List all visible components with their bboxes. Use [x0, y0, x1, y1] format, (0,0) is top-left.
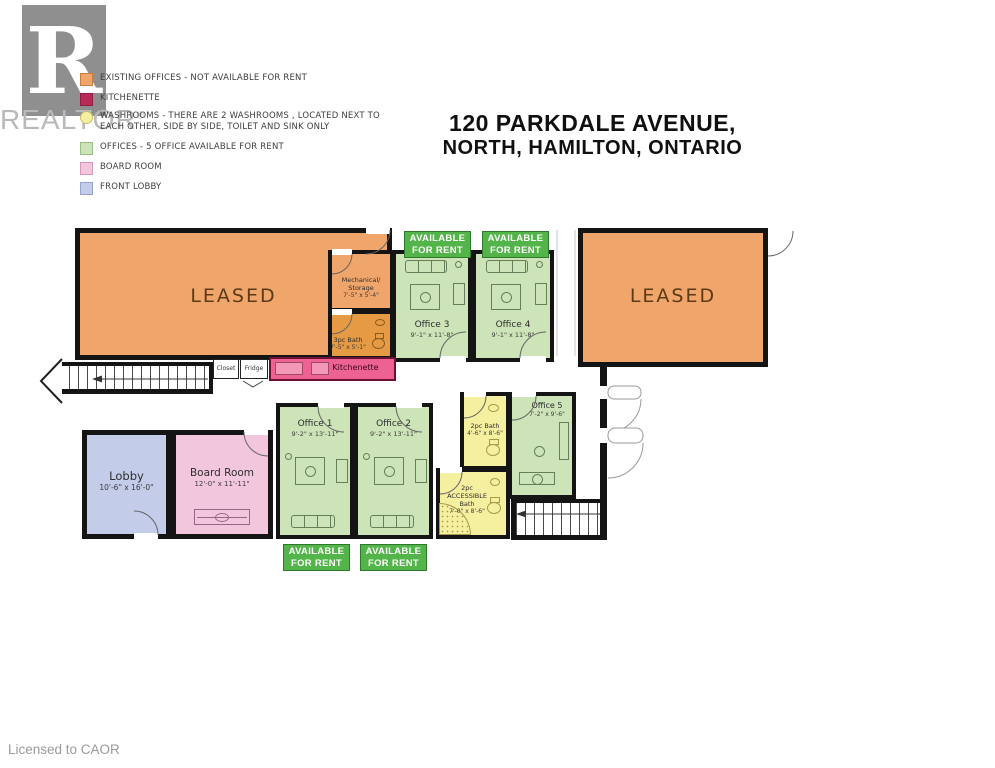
legend-swatch-board-room	[80, 162, 93, 175]
room-mechanical-storage: Mechanical/ Storage 7'-5" x 5'-4"	[328, 250, 394, 312]
available-for-rent-badge: AVAILABLEFOR RENT	[360, 544, 427, 571]
room-label: Office 3	[396, 320, 468, 331]
door-opening	[440, 356, 466, 363]
door-opening	[332, 249, 352, 255]
room-office-1: Office 1 9'-2" x 13'-11"	[276, 403, 354, 539]
title-line-1: 120 PARKDALE AVENUE,	[420, 110, 765, 137]
shelf-icon	[559, 422, 569, 460]
legend-swatch-existing-offices	[80, 73, 93, 86]
legend-swatch-washrooms	[80, 111, 93, 124]
room-dims: 10'-6" x 16'-0"	[87, 483, 166, 492]
door-arc	[608, 443, 643, 478]
available-for-rent-badge: AVAILABLEFOR RENT	[283, 544, 350, 571]
sink-icon	[488, 404, 499, 412]
desk-icon	[295, 457, 325, 485]
legend-swatch-offices	[80, 142, 93, 155]
legend-item-offices: OFFICES - 5 OFFICE AVAILABLE FOR RENT	[80, 142, 392, 155]
room-label: Mechanical/ Storage	[332, 276, 390, 292]
door-opening	[600, 428, 607, 443]
room-bath-3pc: 3pc Bath 7'-5" x 5'-1"	[328, 310, 394, 360]
room-label: Office 4	[476, 320, 550, 331]
exterior-door-icon	[608, 428, 643, 443]
stair-exit-chevron-icon	[41, 359, 62, 403]
room-leased-right: LEASED	[578, 228, 768, 367]
legend-item-front-lobby: FRONT LOBBY	[80, 182, 392, 195]
room-dims: 7'-0" x 8'-6"	[441, 508, 493, 516]
available-for-rent-badge: AVAILABLEFOR RENT	[404, 231, 471, 258]
staircase-left	[60, 362, 213, 394]
door-opening	[440, 467, 462, 473]
license-text: Licensed to CAOR	[8, 742, 120, 757]
room-dims: 9'-1" x 11'-8"	[396, 331, 468, 339]
sofa-icon	[486, 260, 528, 273]
door-opening	[396, 402, 422, 408]
room-dims: 12'-0" x 11'-11"	[176, 480, 268, 489]
room-label: 3pc Bath	[326, 336, 370, 344]
room-label: 2pc Bath	[464, 422, 506, 430]
available-for-rent-badge: AVAILABLEFOR RENT	[482, 231, 549, 258]
chair-icon	[336, 459, 348, 483]
room-bath-accessible: 2pc ACCESSIBLE Bath 7'-0" x 8'-6"	[436, 468, 510, 539]
desk-icon	[374, 457, 404, 485]
room-kitchenette: Kitchenette	[269, 357, 396, 381]
sofa-icon	[291, 515, 335, 528]
door-opening	[332, 309, 352, 315]
room-dims: 9'-1" x 11'-8"	[476, 331, 550, 339]
room-label: Office 2	[358, 419, 429, 430]
plant-icon	[363, 453, 370, 460]
room-label: LEASED	[583, 285, 763, 307]
title-line-2: NORTH, HAMILTON, ONTARIO	[420, 137, 765, 160]
fridge: Fridge	[240, 359, 268, 379]
door-opening	[600, 386, 607, 399]
toilet-icon	[372, 338, 385, 349]
door-opening	[366, 228, 390, 234]
closet: Closet	[213, 359, 239, 379]
room-dims: 4'-6" x 8'-6"	[464, 430, 506, 438]
room-dims: 7'-5" x 5'-4"	[332, 292, 390, 300]
room-dims: 7'-2" x 9'-6"	[522, 411, 572, 419]
room-label: 2pc ACCESSIBLE Bath	[441, 484, 493, 508]
room-office-3: Office 3 9'-1" x 11'-8"	[392, 250, 472, 362]
stove-icon	[275, 362, 303, 375]
corridor-lines	[557, 230, 575, 356]
room-board-room: Board Room 12'-0" x 11'-11"	[171, 430, 273, 539]
plant-icon	[285, 453, 292, 460]
sofa-icon	[370, 515, 414, 528]
room-office-5: Office 5 7'-2" x 9'-6"	[508, 392, 576, 499]
desk-icon	[491, 284, 521, 310]
page-title: 120 PARKDALE AVENUE, NORTH, HAMILTON, ON…	[420, 110, 765, 160]
door-arc	[768, 231, 793, 256]
room-label: Office 5	[522, 401, 572, 411]
chair-icon	[415, 459, 427, 483]
room-lobby: Lobby 10'-6" x 16'-0"	[82, 430, 171, 539]
chair-icon	[535, 283, 547, 305]
chair-icon	[453, 283, 465, 305]
room-label: Lobby	[87, 469, 166, 483]
exterior-door-icon	[608, 386, 641, 399]
desk-icon	[410, 284, 440, 310]
desk-icon	[519, 472, 555, 485]
legend-swatch-front-lobby	[80, 182, 93, 195]
staircase-right	[511, 499, 602, 540]
door-opening	[464, 391, 486, 397]
room-bath-2pc: 2pc Bath 4'-6" x 8'-6"	[460, 392, 510, 470]
door-opening	[134, 533, 158, 540]
fridge-door-chevron-icon	[243, 381, 263, 387]
door-opening	[244, 429, 268, 435]
toilet-icon	[486, 444, 500, 456]
room-label: Kitchenette	[317, 363, 394, 373]
room-dims: 9'-2" x 13'-11"	[358, 430, 429, 438]
plant-icon	[536, 261, 543, 268]
door-arc	[608, 399, 641, 432]
floor-plan-page: R REALTOR® EXISTING OFFICES - NOT AVAILA…	[0, 0, 995, 768]
board-table-icon	[194, 509, 250, 525]
legend-item-board-room: BOARD ROOM	[80, 162, 392, 175]
sink-icon	[375, 319, 385, 326]
legend-item-existing-offices: EXISTING OFFICES - NOT AVAILABLE FOR REN…	[80, 73, 392, 86]
room-dims: 7'-5" x 5'-1"	[326, 344, 370, 352]
room-dims: 9'-2" x 13'-11"	[280, 430, 350, 438]
legend-item-kitchenette: KITCHENETTE	[80, 93, 392, 106]
room-office-4: Office 4 9'-1" x 11'-8"	[472, 250, 554, 362]
sofa-icon	[405, 260, 447, 273]
plant-icon	[455, 261, 462, 268]
legend-item-washrooms: WASHROOMS - THERE ARE 2 WASHROOMS , LOCA…	[80, 111, 392, 134]
room-office-2: Office 2 9'-2" x 13'-11"	[354, 403, 433, 539]
legend-swatch-kitchenette	[80, 93, 93, 106]
chair-icon	[534, 446, 545, 457]
door-opening	[318, 402, 344, 408]
room-label: Board Room	[176, 467, 268, 480]
room-label: Office 1	[280, 419, 350, 430]
door-opening	[512, 391, 536, 397]
door-opening	[520, 356, 546, 363]
